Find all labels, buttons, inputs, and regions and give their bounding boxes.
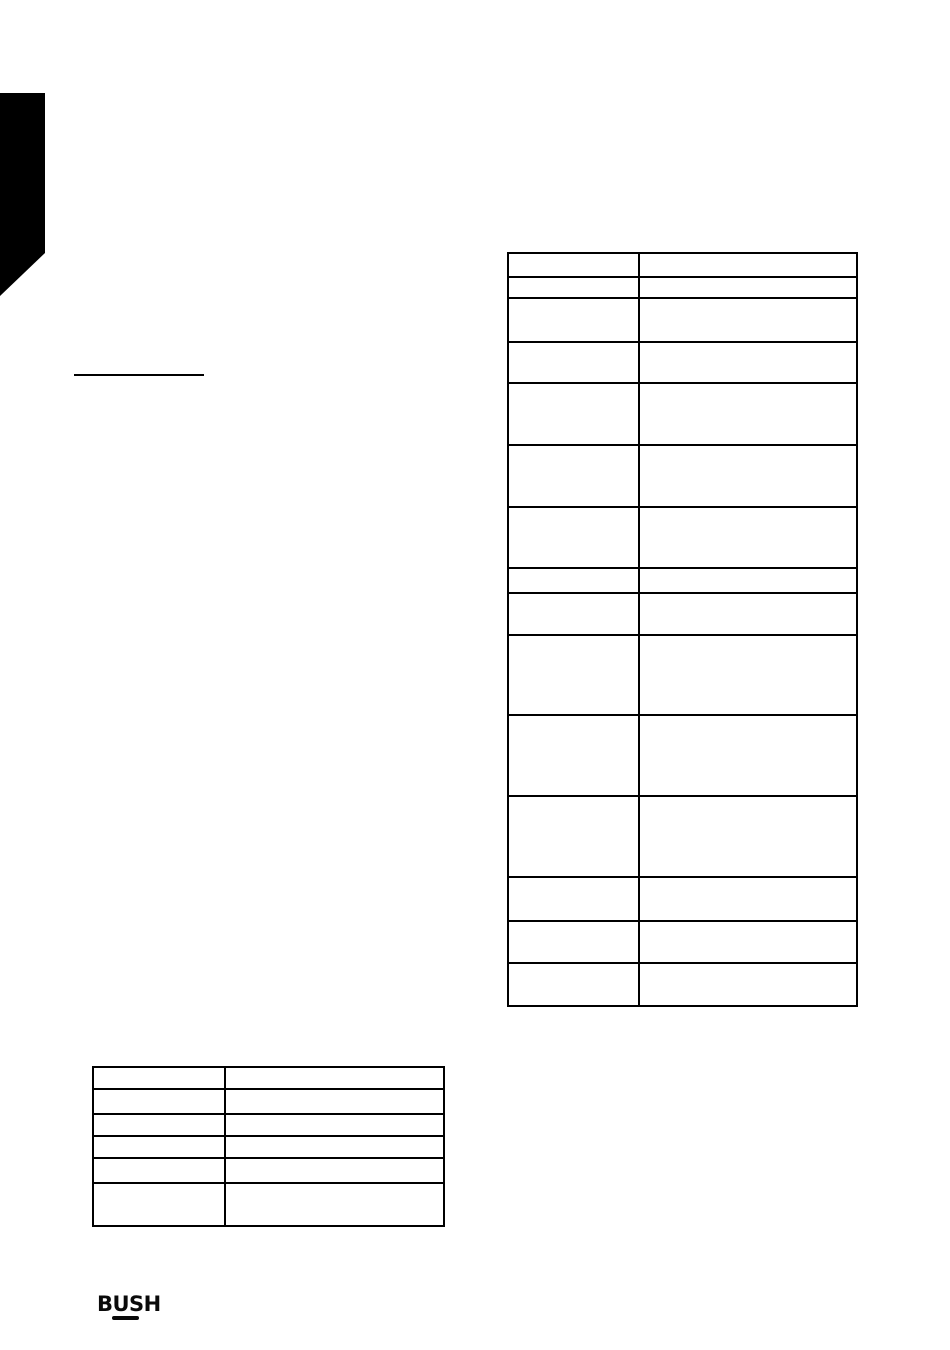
table-row — [508, 877, 857, 921]
table-cell — [508, 715, 639, 796]
table-cell — [639, 568, 857, 593]
table-row — [93, 1136, 444, 1158]
table-row — [93, 1183, 444, 1226]
table-cell — [508, 298, 639, 342]
heading-underline-rule — [74, 374, 204, 376]
table-cell — [639, 593, 857, 635]
table-row — [508, 298, 857, 342]
bush-logo-underline — [112, 1316, 139, 1320]
table-cell — [225, 1183, 444, 1226]
table-row — [508, 445, 857, 507]
table-cell — [93, 1067, 225, 1089]
table-row — [508, 253, 857, 277]
table-cell — [508, 253, 639, 277]
table-row — [508, 593, 857, 635]
table-cell — [639, 963, 857, 1006]
table-row — [508, 715, 857, 796]
bush-logo: BUSH — [97, 1294, 167, 1320]
corner-tab-decoration — [0, 93, 45, 296]
table-cell — [639, 796, 857, 877]
right-two-column-table — [507, 252, 858, 1007]
table-cell — [508, 342, 639, 383]
table-cell — [639, 277, 857, 298]
table-cell — [639, 877, 857, 921]
table-row — [508, 568, 857, 593]
table-cell — [93, 1136, 225, 1158]
table-cell — [508, 507, 639, 568]
table-row — [93, 1158, 444, 1183]
table-row — [93, 1114, 444, 1136]
table-cell — [639, 445, 857, 507]
bush-logo-text: BUSH — [97, 1294, 167, 1315]
table-cell — [93, 1183, 225, 1226]
table-row — [508, 963, 857, 1006]
bottom-left-table — [92, 1066, 445, 1227]
table-cell — [639, 253, 857, 277]
right-table — [507, 252, 858, 1007]
table-cell — [508, 921, 639, 963]
table-cell — [639, 635, 857, 715]
document-page: BUSH — [0, 0, 950, 1350]
table-cell — [639, 715, 857, 796]
table-row — [508, 921, 857, 963]
table-cell — [225, 1067, 444, 1089]
table-cell — [508, 277, 639, 298]
table-cell — [93, 1114, 225, 1136]
table-row — [508, 383, 857, 445]
table-cell — [508, 568, 639, 593]
table-cell — [639, 921, 857, 963]
table-cell — [639, 507, 857, 568]
table-row — [508, 277, 857, 298]
table-cell — [93, 1158, 225, 1183]
table-row — [93, 1089, 444, 1114]
table-cell — [508, 593, 639, 635]
table-cell — [508, 635, 639, 715]
bottom-left-two-column-table — [92, 1066, 445, 1227]
table-cell — [639, 383, 857, 445]
table-cell — [639, 342, 857, 383]
table-row — [508, 796, 857, 877]
table-cell — [508, 796, 639, 877]
table-row — [93, 1067, 444, 1089]
table-row — [508, 635, 857, 715]
table-cell — [508, 445, 639, 507]
table-row — [508, 507, 857, 568]
table-cell — [93, 1089, 225, 1114]
table-cell — [225, 1158, 444, 1183]
table-cell — [508, 877, 639, 921]
table-row — [508, 342, 857, 383]
table-cell — [225, 1136, 444, 1158]
table-cell — [508, 963, 639, 1006]
table-cell — [639, 298, 857, 342]
table-cell — [225, 1114, 444, 1136]
table-cell — [225, 1089, 444, 1114]
table-cell — [508, 383, 639, 445]
